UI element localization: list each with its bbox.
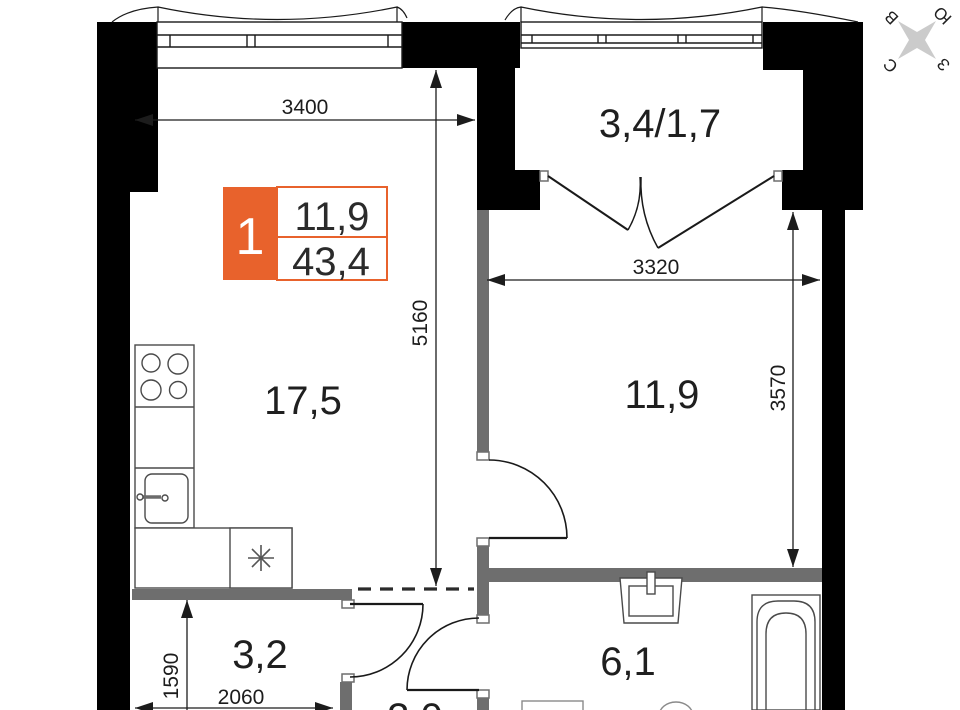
jamb-wardrobe-top bbox=[477, 615, 489, 623]
floor-plan-svg: 3400 5160 3320 3570 1590 bbox=[0, 0, 960, 710]
wall-hallway-stub bbox=[340, 682, 352, 710]
floor-plan-page: 3400 5160 3320 3570 1590 bbox=[0, 0, 960, 710]
dim-hallway-width-label: 2060 bbox=[218, 686, 265, 709]
wall-right-upper-block bbox=[803, 70, 863, 210]
wall-top-left-block bbox=[97, 22, 158, 192]
wall-top-right-band bbox=[763, 22, 863, 70]
dim-kitchen-depth-label: 5160 bbox=[409, 300, 432, 347]
washer-bathroom-icon bbox=[522, 701, 583, 710]
wall-hallway-top bbox=[132, 589, 352, 600]
wall-balcony-left-pier bbox=[477, 22, 515, 210]
dim-kitchen-width-label: 3400 bbox=[282, 96, 329, 119]
kitchen-window bbox=[157, 22, 402, 68]
wall-right bbox=[822, 210, 845, 710]
unit-badge-number: 1 bbox=[236, 208, 265, 266]
label-kitchen-living: 17,5 bbox=[264, 379, 342, 423]
jamb-balcony-left bbox=[540, 171, 548, 181]
balcony-window bbox=[521, 22, 762, 48]
wall-balcony-door-right bbox=[782, 170, 803, 210]
unit-badge-room-area: 11,9 bbox=[295, 195, 370, 239]
wall-bedroom-left-lower bbox=[477, 546, 489, 615]
jamb-balcony-right bbox=[774, 171, 782, 181]
bathtub-icon bbox=[752, 595, 820, 710]
kitchen-sink-icon bbox=[137, 474, 188, 523]
dim-bedroom-depth-label: 3570 bbox=[767, 365, 790, 412]
unit-badge-total-area: 43,4 bbox=[292, 240, 370, 284]
label-balcony: 3,4/1,7 bbox=[599, 102, 721, 146]
jamb-hallway-bottom bbox=[342, 674, 354, 682]
wall-balcony-door-left bbox=[515, 170, 540, 210]
jamb-bedroom-bottom bbox=[477, 538, 489, 546]
washbasin-icon bbox=[620, 572, 682, 623]
jamb-wardrobe-bottom bbox=[477, 690, 489, 698]
jamb-bedroom-top bbox=[477, 452, 489, 460]
dim-hallway-depth-label: 1590 bbox=[160, 653, 183, 700]
wall-wardrobe-right-stub bbox=[477, 698, 489, 710]
label-bedroom: 11,9 bbox=[625, 373, 700, 417]
label-bathroom: 6,1 bbox=[600, 640, 656, 684]
unit-badge: 1 11,9 43,4 bbox=[223, 187, 387, 284]
wall-bedroom-left bbox=[477, 210, 489, 453]
label-wardrobe: 3,0 bbox=[387, 696, 443, 710]
dim-bedroom-width-label: 3320 bbox=[633, 256, 680, 279]
wall-left bbox=[97, 192, 130, 710]
label-hallway: 3,2 bbox=[232, 633, 288, 677]
